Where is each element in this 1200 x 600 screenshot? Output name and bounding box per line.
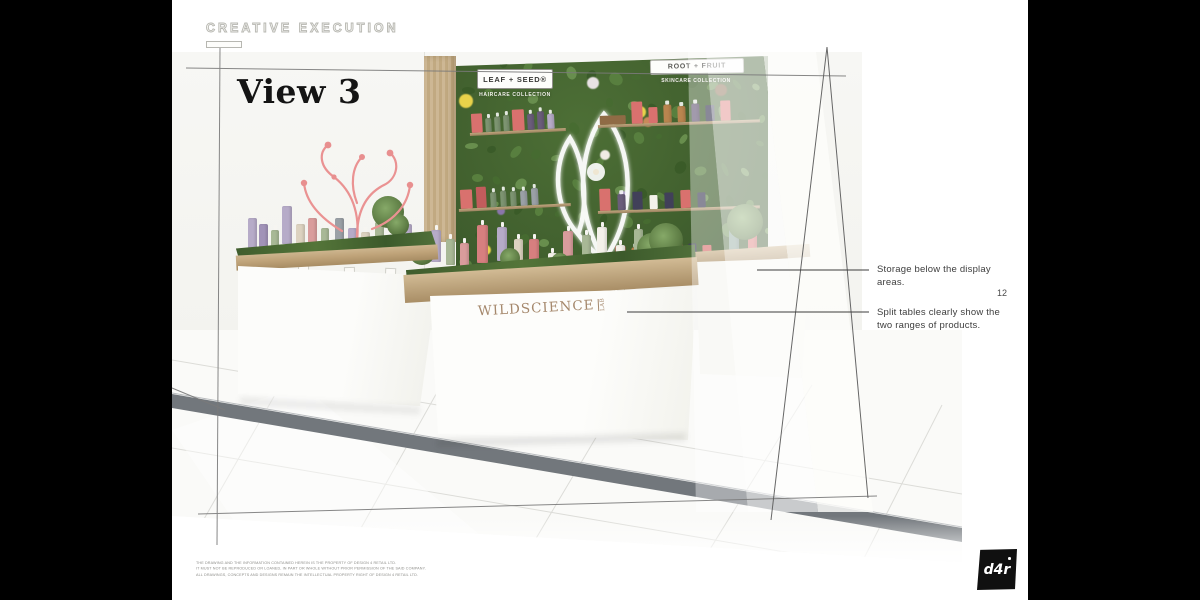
frame-right-line-a	[771, 47, 827, 520]
frame-corner-line	[172, 388, 225, 410]
d4r-logo: d4r	[977, 549, 1017, 590]
kicker-underline-box	[206, 41, 242, 48]
view-title: View 3	[237, 72, 361, 111]
legal-line: ALL DRAWINGS, CONCEPTS AND DESIGNS REMAI…	[196, 573, 456, 579]
kicker-title: CREATIVE EXECUTION	[206, 21, 399, 35]
page-number: 12	[997, 288, 1007, 298]
legal-disclaimer: THE DRAWING AND THE INFORMATION CONTAINE…	[196, 561, 456, 578]
legal-line: IT MUST NOT BE REPRODUCED OR LOANED, IN …	[196, 567, 456, 573]
frame-right-line-b	[827, 47, 868, 498]
d4r-logo-dot	[1008, 557, 1011, 560]
annotation-storage: Storage below the display areas.	[877, 263, 1003, 290]
slide: LEAF + SEED® HAIRCARE COLLECTION ROOT + …	[0, 0, 1200, 600]
frame-lines	[0, 0, 1200, 600]
frame-left-line	[217, 48, 220, 545]
frame-bottom-line	[198, 496, 877, 514]
d4r-logo-text: d4r	[984, 562, 1011, 578]
annotation-split-tables: Split tables clearly show the two ranges…	[877, 306, 1003, 333]
